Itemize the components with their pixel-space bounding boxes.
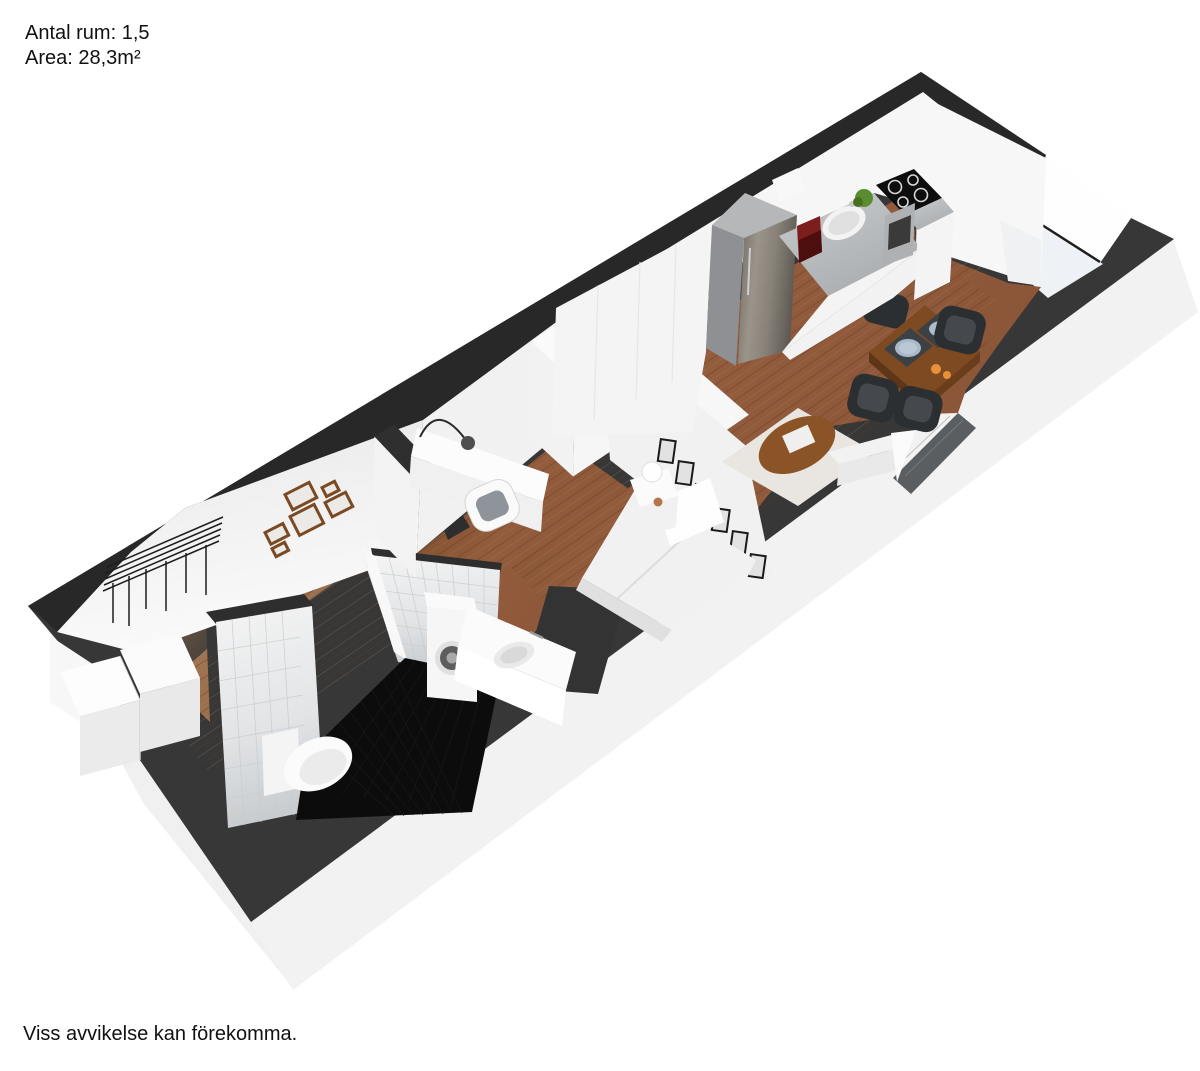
svg-text:Area: 28,3m²: Area: 28,3m² xyxy=(25,47,141,69)
svg-text:Antal rum: 1,5: Antal rum: 1,5 xyxy=(25,22,150,44)
svg-text:Viss avvikelse kan förekomma.: Viss avvikelse kan förekomma. xyxy=(23,1023,297,1045)
